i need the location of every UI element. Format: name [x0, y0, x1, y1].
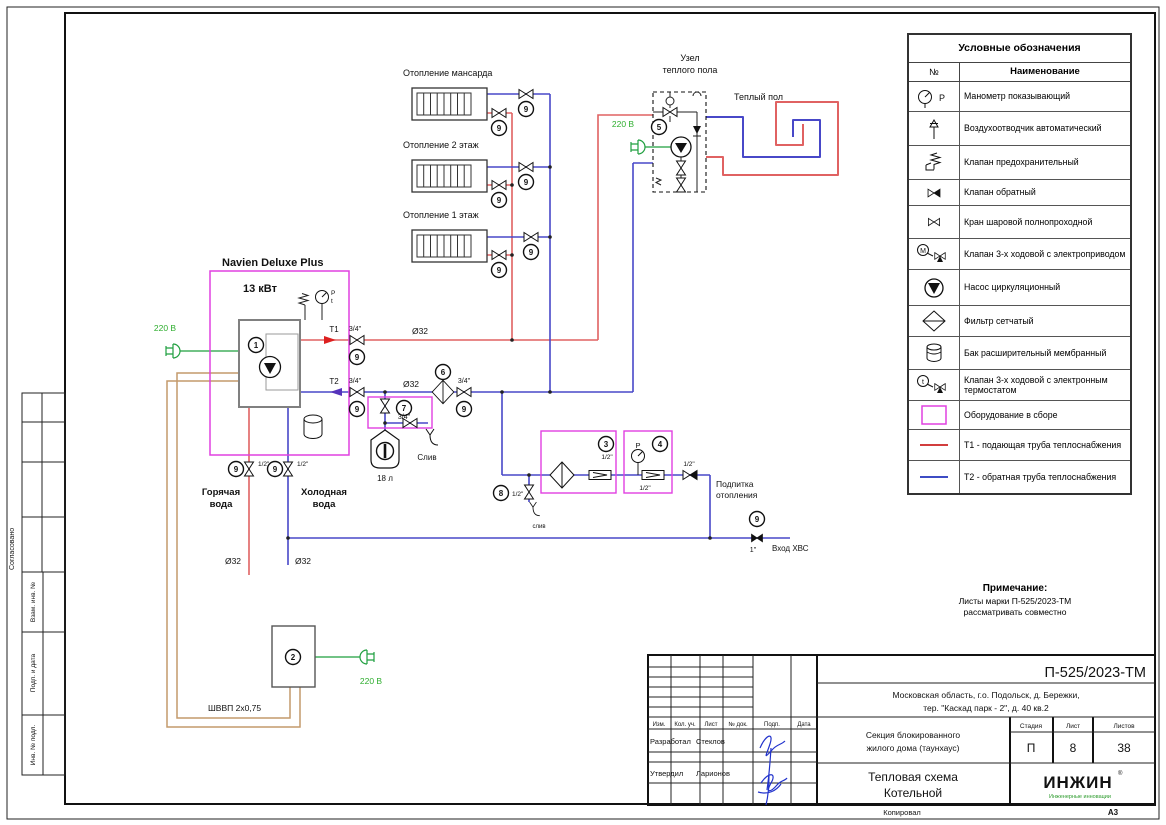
dn-label: 1/2": [258, 461, 270, 468]
legend-title: Условные обозначения: [909, 35, 1130, 63]
svg-text:9: 9: [497, 266, 502, 275]
svg-text:2: 2: [291, 653, 296, 662]
dn-label: 3/4": [458, 378, 471, 385]
developed-name: Стеклов: [696, 737, 725, 746]
ball-valve-icon: [492, 181, 506, 190]
legend-row-name: Кран шаровой полнопроходной: [960, 206, 1130, 238]
tag-9: 9: [457, 402, 472, 417]
legend-row-name: Т2 - обратная труба теплоснабжения: [960, 461, 1130, 493]
tank-volume-label: 18 л: [377, 474, 393, 483]
tag-9: 9: [268, 462, 283, 477]
note-title: Примечание:: [925, 583, 1105, 594]
svg-text:9: 9: [273, 465, 278, 474]
legend-row: Т2 - обратная труба теплоснабжения: [909, 461, 1130, 493]
svg-text:1: 1: [254, 341, 259, 350]
drain-icon: [426, 429, 438, 445]
ball-valve-icon: [350, 336, 364, 345]
svg-text:9: 9: [529, 248, 534, 257]
reducer-icon: [642, 471, 664, 480]
tag-9: 9: [229, 462, 244, 477]
t1-pipe-label: T1: [329, 325, 339, 334]
legend-row: Клапан обратный: [909, 180, 1130, 206]
ufh-unit-label2: теплого пола: [663, 65, 718, 75]
ball-valve-icon: [381, 399, 390, 413]
hvs-inlet-label: Вход ХВС: [772, 544, 809, 553]
stage-header: Стадия: [1020, 723, 1043, 730]
ball-valve-icon: [245, 462, 254, 476]
svg-text:9: 9: [524, 105, 529, 114]
tag-2: 2: [286, 650, 301, 665]
power-220v-label: 220 В: [360, 676, 383, 686]
strainer-filter-icon: [432, 380, 454, 403]
legend-header: № Наименование: [909, 63, 1130, 82]
svg-text:8: 8: [499, 489, 504, 498]
legend-row-name: Клапан обратный: [960, 180, 1130, 205]
gauge-p-label: P: [635, 441, 640, 450]
note-line2: рассматривать совместно: [925, 607, 1105, 618]
diameter-label: Ø32: [295, 556, 311, 566]
copied-by-label: Копировал: [883, 808, 921, 817]
motor-valve-actuator-icon: [666, 97, 674, 105]
tag-3: 3: [599, 437, 614, 452]
check-valve-icon: [683, 471, 697, 480]
signature-scribbles: [758, 736, 787, 805]
ball-valve-icon: [284, 462, 293, 476]
boiler-name-label: Navien Deluxe Plus: [222, 257, 324, 269]
legend-row: Т1 - подающая труба теплоснабжения: [909, 430, 1130, 461]
legend-row-name: Оборудование в сборе: [960, 401, 1130, 429]
legend-row: Воздухоотводчик автоматический: [909, 112, 1130, 146]
check-valve-icon: [909, 180, 960, 205]
floor-heating-unit: [653, 92, 706, 192]
tag-1: 1: [249, 338, 264, 353]
diameter-label: Ø32: [412, 326, 428, 336]
left-margin-stamps: Согласовано Взам. инв. № Подп. и дата Ин…: [9, 393, 65, 775]
approved-role: Утвердил: [650, 769, 683, 778]
sheets-value: 38: [1117, 741, 1131, 755]
tag-9: 9: [350, 350, 365, 365]
legend-row-name: Насос циркуляционный: [960, 270, 1130, 305]
tag-9: 9: [492, 193, 507, 208]
legend-row-name: Бак расширительный мембранный: [960, 337, 1130, 369]
svg-text:М: М: [920, 248, 926, 255]
svg-text:9: 9: [355, 353, 360, 362]
safety-valve-icon: [299, 294, 308, 306]
object-address-line2: тер. "Каскад парк - 2", д. 40 кв.2: [923, 703, 1049, 713]
t1-line-icon: [909, 430, 960, 460]
stamp-box2-label: Подп. и дата: [30, 653, 37, 692]
stamp-col-izm: Изм.: [653, 722, 666, 728]
stamp-col-podp: Подп.: [764, 722, 780, 728]
cold-water-label2: вода: [313, 499, 336, 510]
dn-label: 1/2": [512, 491, 524, 498]
boiler-power-label: 13 кВт: [243, 283, 278, 295]
expansion-tank-icon: [909, 337, 960, 369]
three-way-motor-valve-icon: М: [909, 239, 960, 269]
tag-9: 9: [519, 102, 534, 117]
radiator-floor2: [412, 160, 487, 192]
t2-pipe-label: T2: [329, 377, 339, 386]
strainer-filter-icon: [550, 462, 574, 488]
legend-row-name: Фильтр сетчатый: [960, 306, 1130, 336]
object-address-line1: Московская область, г.о. Подольск, д. Бе…: [892, 690, 1079, 700]
dn-label: 1": [750, 547, 757, 554]
legend-row: t Клапан 3-х ходовой с электронным термо…: [909, 370, 1130, 401]
pipes-t1-supply: [249, 102, 838, 575]
developed-role: Разработал: [650, 737, 691, 746]
boiler-navien: [210, 271, 349, 455]
drawing-title-line2: Котельной: [884, 786, 942, 800]
tag-9: 9: [492, 121, 507, 136]
cable-label: ШВВП 2х0,75: [208, 703, 261, 713]
svg-text:P: P: [939, 93, 945, 103]
legend-row: Бак расширительный мембранный: [909, 337, 1130, 370]
dn-label: 1/2": [297, 461, 309, 468]
cold-water-label: Холодная: [301, 487, 347, 498]
ball-valve-icon: [909, 206, 960, 238]
drain-label: слив: [532, 524, 545, 530]
dn-label: 1/2": [639, 485, 651, 492]
stamp-col-koluch: Кол. уч.: [674, 722, 696, 728]
svg-text:9: 9: [497, 196, 502, 205]
legend-col-no: №: [909, 63, 960, 81]
boiler-gauge-icon: [316, 291, 329, 304]
svg-text:t: t: [922, 379, 924, 386]
flow-arrows: [324, 336, 342, 396]
ball-valve-icon: [350, 388, 364, 397]
svg-text:9: 9: [755, 515, 760, 524]
logo-registered-mark: ®: [1118, 770, 1123, 777]
legend-row: Насос циркуляционный: [909, 270, 1130, 306]
radiator-attic: [412, 88, 487, 120]
svg-text:6: 6: [441, 368, 446, 377]
t2-flow-arrow: [330, 388, 342, 396]
three-way-thermostat-valve-icon: t: [909, 370, 960, 400]
legend-row-name: Клапан 3-х ходовой с электронным термост…: [960, 370, 1130, 400]
svg-text:9: 9: [234, 465, 239, 474]
pump-icon: [909, 270, 960, 305]
drain-icon: [530, 502, 540, 516]
tag-9: 9: [524, 245, 539, 260]
document-code: П-525/2023-ТМ: [1045, 665, 1147, 681]
diameter-label: Ø32: [225, 556, 241, 566]
legend-row: Фильтр сетчатый: [909, 306, 1130, 337]
legend-row: Клапан предохранительный: [909, 146, 1130, 180]
power-plug-icon: [360, 650, 374, 664]
stamp-col-ndok: № док.: [728, 721, 748, 728]
dn-label: 3/4": [349, 378, 362, 385]
reducer-icon: [589, 471, 611, 480]
dn-label: 3/4": [398, 414, 411, 421]
approved-stamp-label: Согласовано: [9, 528, 16, 570]
svg-text:4: 4: [658, 440, 663, 449]
power-220v-label: 220 В: [612, 119, 635, 129]
tag-9: 9: [750, 512, 765, 527]
drawing-sheet: Согласовано Взам. инв. № Подп. и дата Ин…: [0, 0, 1166, 825]
note-block: Примечание: Листы марки П-525/2023-ТМ ра…: [925, 583, 1105, 619]
warm-floor-coil-supply: [706, 102, 838, 175]
ball-valve-icon: [519, 90, 533, 99]
stamp-box3-label: Инв. № подл.: [30, 725, 37, 766]
dn-label: 1/2": [683, 461, 695, 468]
gauge-p-label: P: [331, 290, 335, 297]
strainer-filter-icon: [909, 306, 960, 336]
dn-label: 1/2": [601, 454, 613, 461]
radiator-floor1: [412, 230, 487, 262]
ball-valve-icon: [457, 388, 471, 397]
svg-text:9: 9: [355, 405, 360, 414]
safety-valve-icon: [656, 178, 661, 185]
check-valve-icon: [693, 126, 701, 134]
legend-row-name: Воздухоотводчик автоматический: [960, 112, 1130, 145]
legend-row: P Манометр показывающий: [909, 82, 1130, 112]
company-logo: ИНЖИН: [1043, 773, 1112, 792]
safety-valve-icon: [909, 146, 960, 179]
tag-9: 9: [519, 175, 534, 190]
tag-6: 6: [436, 365, 451, 380]
svg-text:3: 3: [604, 440, 609, 449]
svg-text:7: 7: [402, 404, 407, 413]
ball-valve-icon: [492, 251, 506, 260]
stamp-col-data: Дата: [797, 722, 811, 728]
t2-line-icon: [909, 461, 960, 493]
object-name-line2: жилого дома (таунхаус): [866, 743, 959, 753]
three-way-valve-icon: [663, 108, 677, 117]
ball-valve-icon: [524, 233, 538, 242]
power-plug-icon: [631, 140, 645, 154]
valve-icon: [677, 161, 686, 175]
legend-row: Кран шаровой полнопроходной: [909, 206, 1130, 239]
warm-floor-label: Теплый пол: [734, 92, 783, 102]
pressure-gauge-icon: [632, 450, 645, 463]
sheet-format-label: А3: [1108, 808, 1119, 817]
makeup-label: Подпитка: [716, 479, 754, 489]
ball-valve-icon: [492, 109, 506, 118]
drain-valve-icon: [525, 485, 534, 499]
tag-4: 4: [653, 437, 668, 452]
expansion-tank-18l: [371, 430, 399, 468]
tag-8: 8: [494, 486, 509, 501]
legend-row-name: Т1 - подающая труба теплоснабжения: [960, 430, 1130, 460]
ufh-unit-label: Узел: [680, 53, 699, 63]
legend-col-name: Наименование: [960, 63, 1130, 81]
radiator-floor2-label: Отопление 2 этаж: [403, 140, 479, 150]
hot-water-label2: вода: [210, 499, 233, 510]
svg-text:5: 5: [657, 123, 662, 132]
diameter-label: Ø32: [403, 379, 419, 389]
legend-row-name: Манометр показывающий: [960, 82, 1130, 111]
gauge-icon: P: [909, 82, 960, 111]
legend-row-name: Клапан 3-х ходовой с электроприводом: [960, 239, 1130, 269]
inlet-valve-icon: [752, 534, 763, 541]
tag-9: 9: [350, 402, 365, 417]
company-logo-subtitle: Инженерные инновации: [1049, 794, 1111, 800]
svg-text:9: 9: [524, 178, 529, 187]
boiler-expansion-tank-icon: [304, 415, 322, 439]
drawing-title-line1: Тепловая схема: [868, 770, 958, 784]
object-name-line1: Секция блокированного: [866, 730, 961, 740]
power-plug-icon: [166, 344, 180, 358]
t1-flow-arrow: [324, 336, 336, 344]
tag-9: 9: [492, 263, 507, 278]
svg-text:9: 9: [462, 405, 467, 414]
ball-valve-icon: [519, 163, 533, 172]
valve-icon: [677, 178, 686, 192]
sheet-value: 8: [1070, 741, 1077, 755]
stamp-col-list: Лист: [704, 722, 717, 728]
legend-row: Оборудование в сборе: [909, 401, 1130, 430]
makeup-label2: отопления: [716, 490, 758, 500]
tag-5: 5: [652, 120, 667, 135]
drain-label: Слив: [417, 453, 436, 462]
radiator-floor1-label: Отопление 1 этаж: [403, 210, 479, 220]
svg-text:9: 9: [497, 124, 502, 133]
radiator-attic-label: Отопление мансарда: [403, 68, 492, 78]
hot-water-label: Горячая: [202, 487, 240, 498]
air-vent-icon: [909, 112, 960, 145]
gauge-t-label: t: [331, 298, 333, 305]
approved-name: Ларионов: [696, 769, 730, 778]
stage-value: П: [1027, 741, 1036, 755]
legend-row-name: Клапан предохранительный: [960, 146, 1130, 179]
sheet-header: Лист: [1066, 723, 1080, 730]
air-vent-icon: [693, 92, 701, 96]
legend-row: М Клапан 3-х ходовой с электроприводом: [909, 239, 1130, 270]
legend-table: Условные обозначения № Наименование P Ма…: [907, 33, 1132, 495]
power-220v-label: 220 В: [154, 323, 177, 333]
sheets-header: Листов: [1113, 723, 1135, 730]
dn-label: 3/4": [349, 326, 362, 333]
pipe-junctions: [286, 165, 712, 540]
title-block: Изм. Кол. уч. Лист № док. Подп. Дата Раз…: [648, 655, 1155, 805]
stamp-box1-label: Взам. инв. №: [30, 582, 37, 622]
assembly-box-icon: [909, 401, 960, 429]
note-line1: Листы марки П-525/2023-ТМ: [925, 596, 1105, 607]
